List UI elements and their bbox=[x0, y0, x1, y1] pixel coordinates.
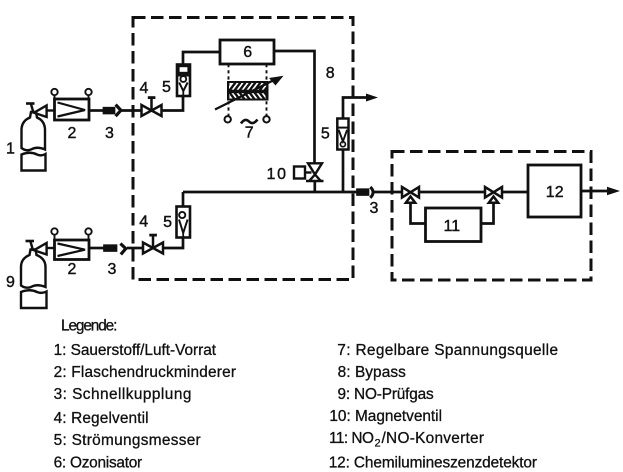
svg-text:1: 1 bbox=[6, 141, 15, 158]
svg-text:4: 4 bbox=[139, 214, 148, 231]
svg-text:12: Chemilumineszenzdetektor: 12: Chemilumineszenzdetektor bbox=[329, 455, 537, 472]
svg-text:8: 8 bbox=[326, 65, 335, 82]
svg-text:3: 3 bbox=[370, 200, 379, 217]
svg-text:4: Regelventil: 4: Regelventil bbox=[54, 410, 149, 427]
svg-text:10: 10 bbox=[267, 166, 287, 183]
svg-text:10: Magnetventil: 10: Magnetventil bbox=[329, 408, 442, 425]
svg-text:Legende:: Legende: bbox=[61, 318, 117, 335]
svg-text:8: Bypass: 8: Bypass bbox=[338, 364, 406, 381]
svg-text:2: Flaschendruckminderer: 2: Flaschendruckminderer bbox=[54, 364, 236, 381]
svg-text:4: 4 bbox=[140, 80, 149, 97]
svg-text:11: NO: 11: NO bbox=[329, 430, 374, 447]
svg-text:7: 7 bbox=[245, 125, 254, 142]
svg-text:6: Ozonisator: 6: Ozonisator bbox=[54, 455, 143, 472]
svg-text:12: 12 bbox=[546, 184, 564, 201]
svg-text:2: 2 bbox=[68, 261, 77, 278]
svg-text:3: 3 bbox=[105, 125, 114, 142]
svg-text:5: 5 bbox=[321, 126, 330, 143]
svg-text:1: Sauerstoff/Luft-Vorrat: 1: Sauerstoff/Luft-Vorrat bbox=[54, 342, 217, 359]
svg-text:11: 11 bbox=[444, 218, 461, 235]
svg-text:6: 6 bbox=[243, 44, 252, 61]
svg-text:9: NO-Prüfgas: 9: NO-Prüfgas bbox=[338, 386, 434, 403]
svg-text:3: 3 bbox=[108, 261, 117, 278]
svg-text:3: Schnellkupplung: 3: Schnellkupplung bbox=[54, 386, 192, 403]
svg-text:5: 5 bbox=[163, 214, 172, 231]
svg-text:7: Regelbare Spannungsquelle: 7: Regelbare Spannungsquelle bbox=[337, 342, 558, 359]
svg-text:2: 2 bbox=[375, 438, 381, 450]
svg-text:/NO-Konverter: /NO-Konverter bbox=[382, 430, 485, 447]
svg-text:2: 2 bbox=[68, 125, 77, 142]
svg-text:5: 5 bbox=[162, 79, 171, 96]
svg-text:9: 9 bbox=[6, 274, 15, 291]
svg-text:5: Strömungsmesser: 5: Strömungsmesser bbox=[54, 432, 201, 449]
